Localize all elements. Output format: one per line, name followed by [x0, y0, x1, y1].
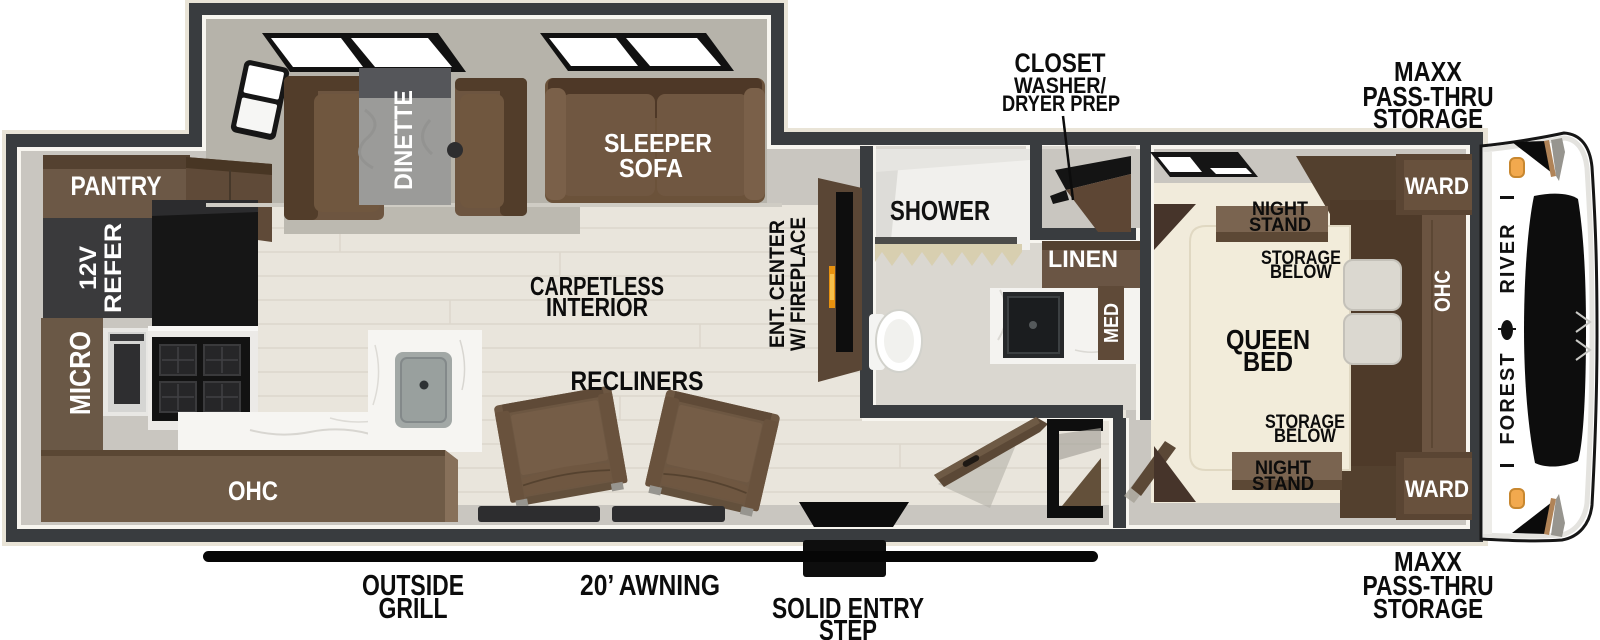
svg-text:OHC: OHC: [228, 476, 278, 506]
svg-text:RECLINERS: RECLINERS: [571, 366, 704, 396]
svg-text:RIVER: RIVER: [1497, 222, 1519, 293]
svg-text:20’ AWNING: 20’ AWNING: [580, 570, 720, 602]
svg-text:W/ FIREPLACE: W/ FIREPLACE: [787, 217, 810, 351]
svg-text:BELOW: BELOW: [1270, 262, 1332, 283]
svg-text:STORAGE: STORAGE: [1373, 103, 1483, 134]
svg-text:ENT. CENTER: ENT. CENTER: [766, 220, 789, 348]
svg-text:STAND: STAND: [1252, 474, 1314, 495]
svg-text:STORAGE: STORAGE: [1373, 593, 1483, 624]
svg-text:STEP: STEP: [819, 615, 877, 640]
svg-text:GRILL: GRILL: [379, 593, 448, 625]
svg-text:DINETTE: DINETTE: [390, 90, 418, 190]
svg-text:STAND: STAND: [1249, 215, 1311, 236]
svg-text:BED: BED: [1243, 346, 1293, 377]
svg-text:REFER: REFER: [100, 223, 127, 313]
svg-text:OHC: OHC: [1430, 270, 1455, 312]
svg-text:INTERIOR: INTERIOR: [546, 292, 648, 322]
svg-text:DRYER PREP: DRYER PREP: [1002, 91, 1120, 116]
svg-text:FOREST: FOREST: [1497, 351, 1519, 444]
svg-text:12V: 12V: [75, 246, 102, 290]
svg-text:SHOWER: SHOWER: [890, 195, 990, 226]
svg-text:BELOW: BELOW: [1274, 426, 1336, 447]
svg-text:PANTRY: PANTRY: [71, 171, 162, 201]
svg-text:LINEN: LINEN: [1048, 246, 1118, 273]
svg-text:SOFA: SOFA: [619, 153, 683, 183]
svg-text:MED: MED: [1101, 303, 1123, 343]
svg-text:WARD: WARD: [1405, 173, 1469, 200]
svg-text:WARD: WARD: [1405, 476, 1469, 503]
svg-text:MICRO: MICRO: [65, 331, 97, 415]
